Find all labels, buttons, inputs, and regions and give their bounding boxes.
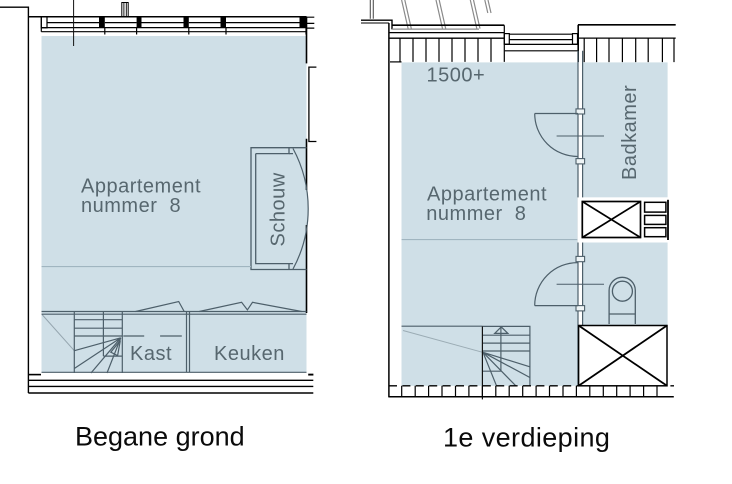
svg-text:nummer 8: nummer 8 <box>426 203 526 225</box>
svg-text:Kast: Kast <box>130 343 172 365</box>
svg-text:nummer 8: nummer 8 <box>81 195 181 217</box>
svg-text:1e verdieping: 1e verdieping <box>443 423 610 453</box>
svg-text:Keuken: Keuken <box>214 343 285 365</box>
svg-text:Badkamer: Badkamer <box>619 85 641 180</box>
svg-text:1500+: 1500+ <box>427 64 486 86</box>
svg-text:Schouw: Schouw <box>268 172 290 246</box>
svg-text:Begane grond: Begane grond <box>75 422 245 452</box>
